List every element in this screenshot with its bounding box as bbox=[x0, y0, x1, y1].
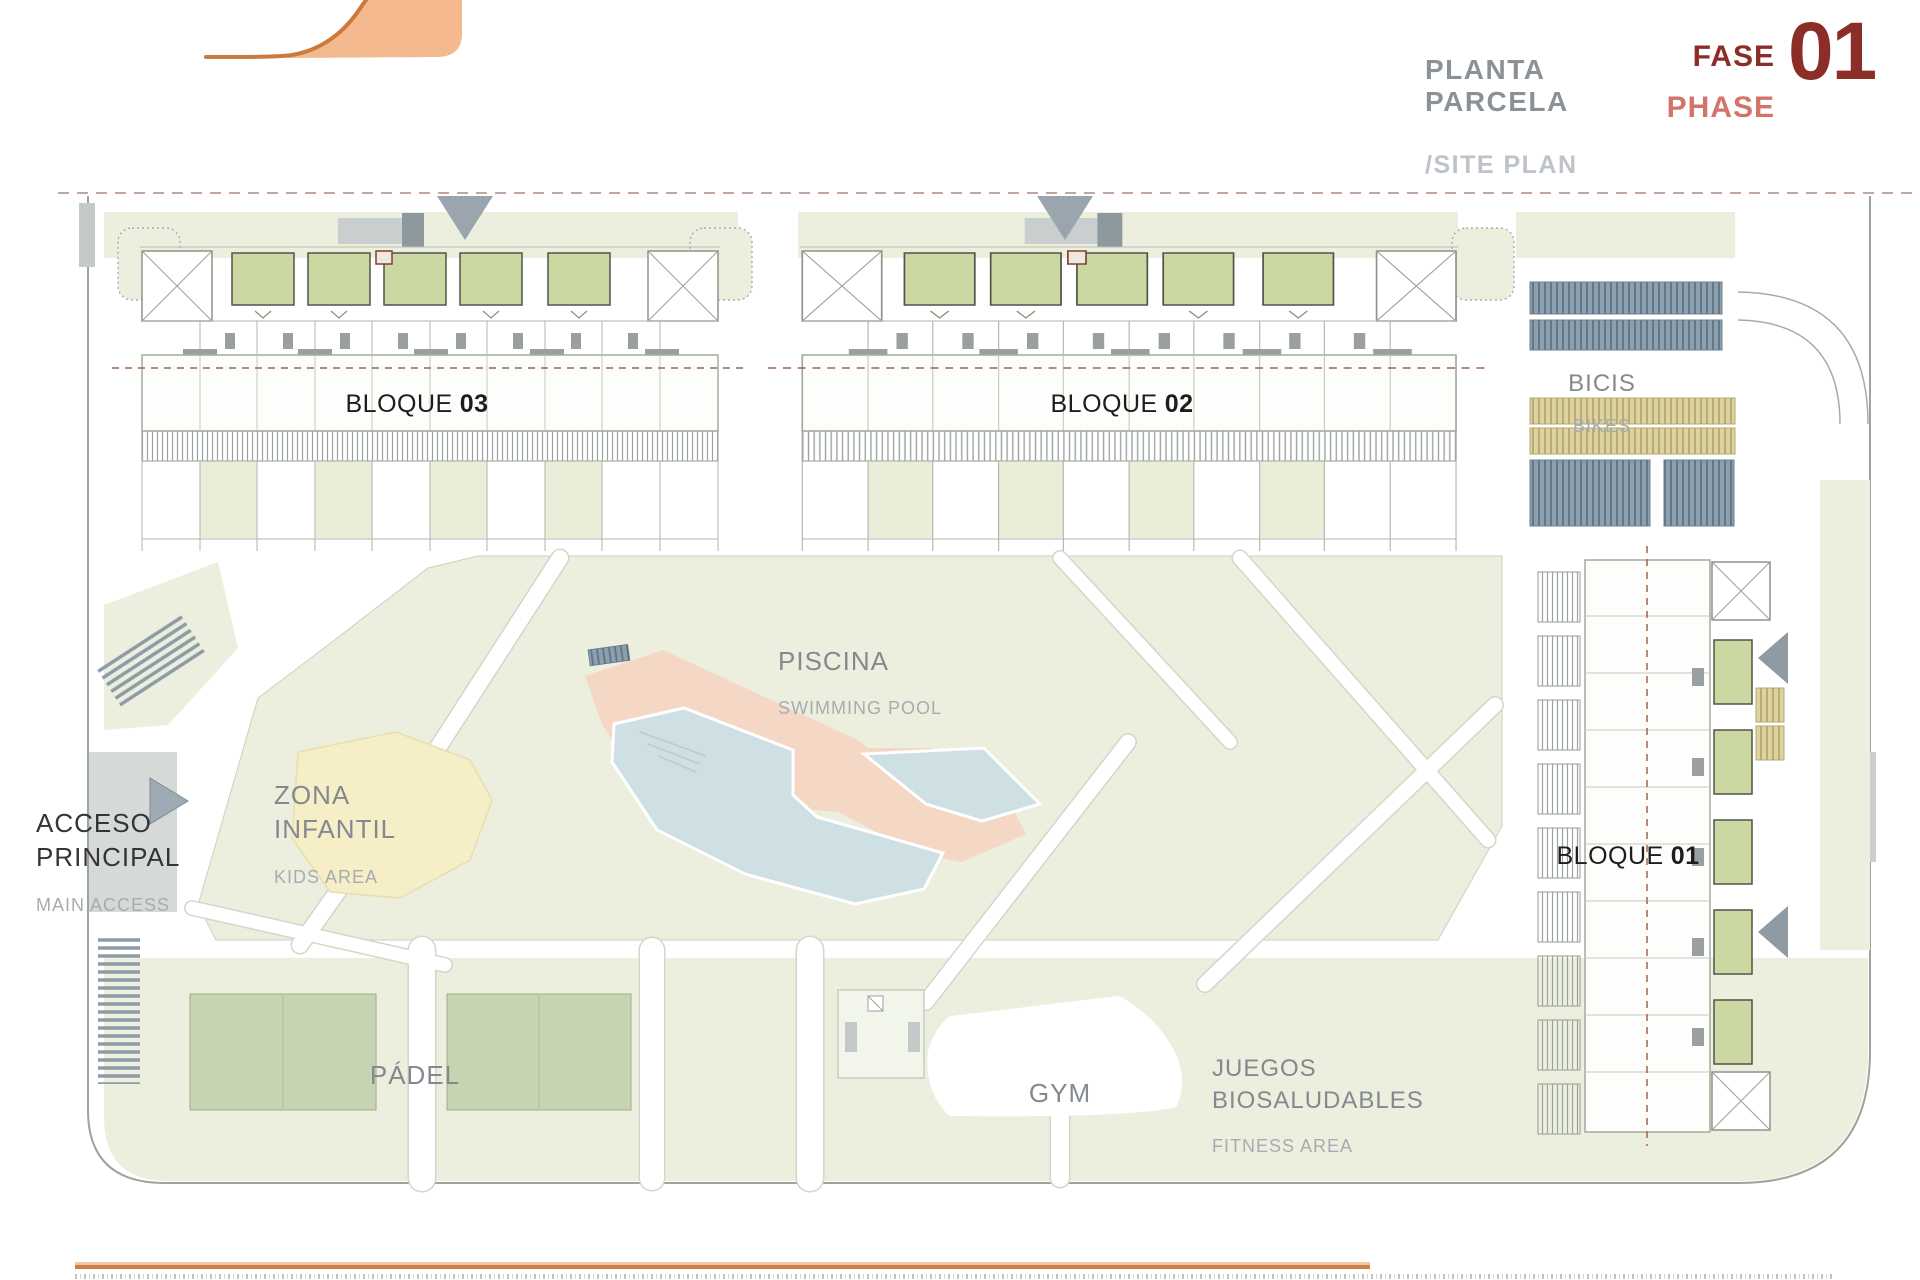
footer-rule bbox=[75, 1262, 1370, 1269]
fitness-pad bbox=[838, 990, 924, 1078]
crosswalk-vertical bbox=[98, 938, 140, 1084]
entrance-marker-bloque-01-bottom bbox=[1758, 906, 1788, 958]
entrance-marker-bloque-01-top bbox=[1758, 632, 1788, 684]
page-title-es: PLANTA PARCELA bbox=[1425, 54, 1655, 118]
label-bloque-01: BLOQUE01 bbox=[1528, 813, 1728, 871]
label-fitness-area: JUEGOS BIOSALUDABLES FITNESS AREA bbox=[1212, 1035, 1447, 1175]
phase-label-es: FASE bbox=[1645, 40, 1775, 73]
brand-logo bbox=[0, 0, 480, 70]
page-title: PLANTA PARCELA /SITE PLAN bbox=[1425, 22, 1655, 212]
label-padel: PÁDEL bbox=[345, 1040, 485, 1110]
label-pool: PISCINA SWIMMING POOL bbox=[778, 626, 942, 737]
footer-fine-print-cutoff bbox=[75, 1274, 1835, 1279]
phase-number: 01 bbox=[1788, 18, 1875, 85]
label-bikes: BICIS BIKES bbox=[1542, 350, 1662, 455]
site-plan-page: PLANTA PARCELA /SITE PLAN FASE PHASE 01 … bbox=[0, 0, 1920, 1280]
label-kids-area: ZONA INFANTIL KIDS AREA bbox=[274, 760, 399, 906]
phase-label-en: PHASE bbox=[1645, 91, 1775, 125]
phase-label: FASE PHASE bbox=[1645, 22, 1775, 143]
label-bloque-02: BLOQUE02 bbox=[1022, 361, 1222, 419]
access-road-curve bbox=[1738, 292, 1868, 424]
label-gym: GYM bbox=[1000, 1058, 1120, 1128]
left-edge-marker bbox=[79, 203, 95, 267]
page-title-en: /SITE PLAN bbox=[1425, 151, 1655, 180]
label-main-access: ACCESO PRINCIPAL MAIN ACCESS bbox=[36, 788, 181, 934]
label-bloque-03: BLOQUE03 bbox=[317, 361, 517, 419]
